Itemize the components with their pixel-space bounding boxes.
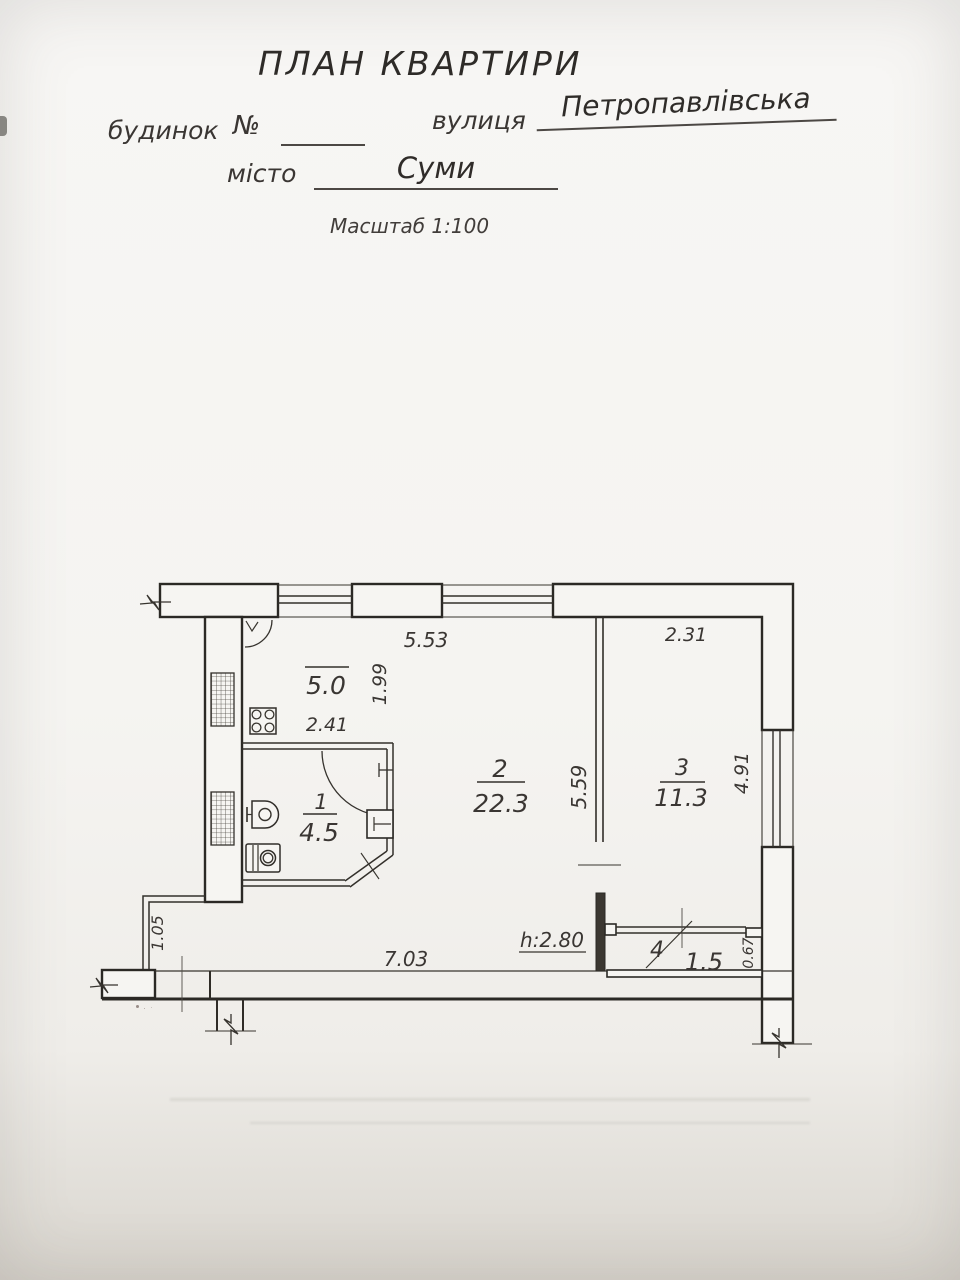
water-heater-icon <box>367 810 393 838</box>
stove-icon <box>250 708 276 734</box>
room4-area: 1.5 <box>685 948 723 976</box>
room3-window <box>762 730 793 847</box>
vent-shaft-icon <box>211 792 234 845</box>
floor-plan-drawing: 5.53 2.31 5.0 1.99 2.41 1 4.5 2 22.3 5.5… <box>0 0 960 1280</box>
bathroom <box>242 743 393 887</box>
dim-room2-wall: 5.59 <box>567 765 591 810</box>
room3-area: 11.3 <box>654 784 707 812</box>
room1-number: 1 <box>314 790 327 814</box>
vent-shaft-icon <box>211 673 234 726</box>
wall-bottom-left-block <box>102 970 155 998</box>
room2-window <box>442 585 553 617</box>
kitchen-door-arc-icon <box>245 620 272 647</box>
dim-bottom-wall: 7.03 <box>384 947 429 971</box>
dim-kitchen-width: 2.41 <box>306 714 348 736</box>
toilet-icon <box>247 801 279 828</box>
scanned-floor-plan-document: ПЛАН КВАРТИРИ будинок № вулиця Петропавл… <box>0 0 960 1280</box>
kitchen-door-leaf <box>246 621 258 631</box>
ceiling-height-label: h:2.80 <box>520 928 584 952</box>
room3-number: 3 <box>675 756 689 781</box>
bathroom-door-arc-icon <box>322 751 387 816</box>
scan-streak <box>170 1098 810 1101</box>
room4-number: 4 <box>650 938 664 963</box>
scan-smudge <box>136 1005 139 1008</box>
dim-room3-top: 2.31 <box>665 624 707 646</box>
washing-machine-icon <box>246 844 280 872</box>
room1-area: 4.5 <box>299 818 339 847</box>
wall-top-right <box>553 584 793 730</box>
kitchen-area-label: 5.0 <box>306 671 346 700</box>
kitchen-window <box>278 585 352 617</box>
wall-right-lower <box>762 847 793 1043</box>
chamfer-tick <box>361 853 379 879</box>
dim-kitchen-depth: 1.99 <box>369 663 391 705</box>
wall-top-pier <box>352 584 442 617</box>
dim-entry: 1.05 <box>148 915 167 951</box>
dim-balcony-depth: 0.67 <box>741 937 757 968</box>
break-marks <box>90 595 812 1058</box>
wall-left <box>205 617 242 902</box>
partition-lower <box>596 893 605 971</box>
dim-top-window: 5.53 <box>404 628 449 652</box>
scan-streak <box>250 1122 810 1124</box>
scan-edge-mark <box>0 116 7 136</box>
wall-top-left-block <box>160 584 278 617</box>
dim-room3-window: 4.91 <box>731 752 753 794</box>
room2-area: 22.3 <box>473 789 529 818</box>
room2-number: 2 <box>492 755 507 783</box>
